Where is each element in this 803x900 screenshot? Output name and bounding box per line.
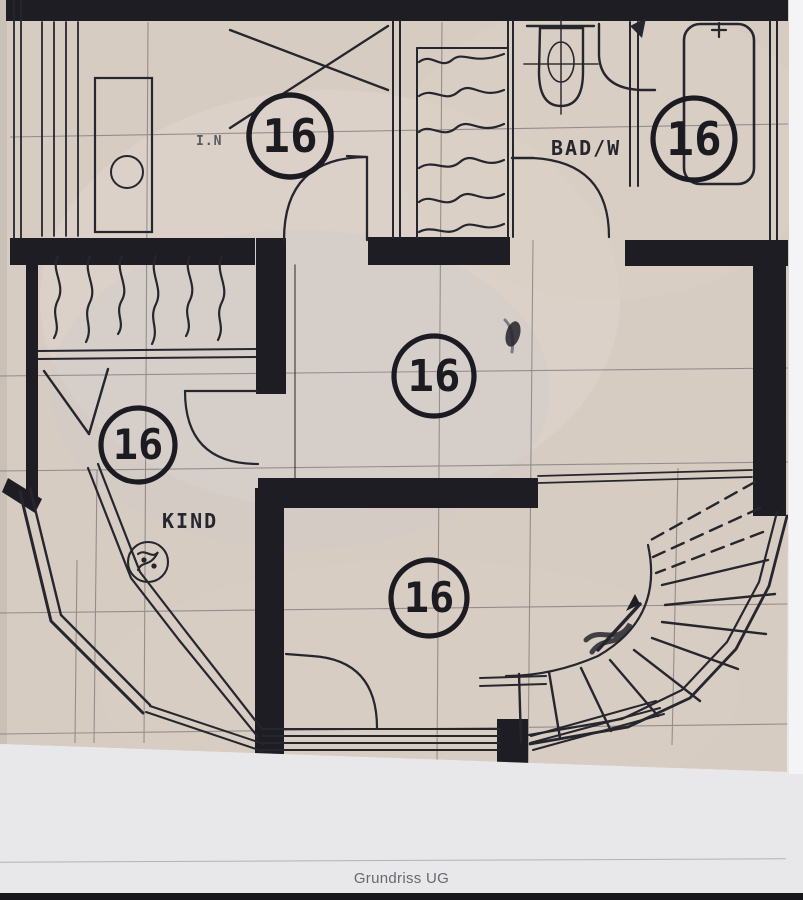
caption: Grundriss UG (0, 870, 803, 887)
room-number: 16 (262, 109, 317, 163)
room-number: 16 (404, 573, 455, 622)
photo-bottom-bar (0, 893, 803, 900)
photo-edge-strip (789, 0, 803, 774)
floorplan-photo: 16 16 16 16 16 (0, 0, 803, 900)
room-number: 16 (113, 420, 164, 469)
room-number: 16 (408, 351, 461, 402)
bathroom-label: BAD/W (551, 136, 621, 160)
floorplan-drawing: 16 16 16 16 16 (0, 0, 803, 900)
top-left-room-label: I.N (196, 134, 222, 149)
room-number: 16 (666, 112, 721, 166)
child-room-label: KIND (162, 509, 218, 533)
paper-edge-shadow (0, 0, 7, 760)
